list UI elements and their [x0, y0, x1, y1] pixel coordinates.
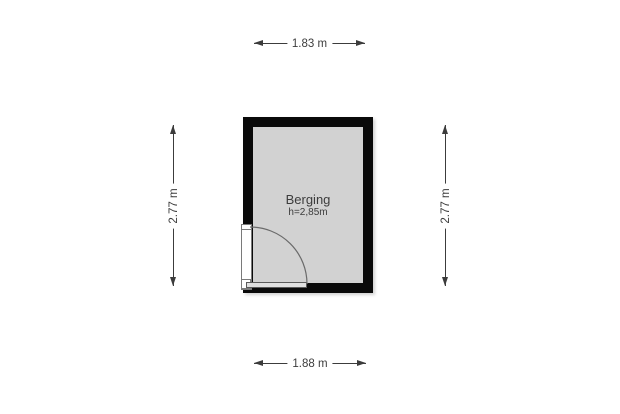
arrowhead-up-icon: [170, 125, 176, 134]
room-floor: Berging h=2,85m: [253, 127, 363, 283]
door-jamb-top: [241, 229, 252, 230]
building-walls: Berging h=2,85m: [243, 117, 373, 293]
arrowhead-down-icon: [170, 277, 176, 286]
dimension-top: 1.83 m: [254, 37, 365, 50]
dimension-bottom-label: 1.88 m: [287, 358, 332, 370]
dimension-left: 2.77 m: [167, 125, 180, 286]
floorplan-canvas: 1.83 m 1.88 m 2.77 m 2.77 m Berging h=2,…: [0, 0, 620, 414]
room-name: Berging: [286, 192, 331, 207]
dimension-top-label: 1.83 m: [287, 38, 332, 50]
arrowhead-left-icon: [254, 360, 263, 366]
dimension-bottom: 1.88 m: [254, 357, 366, 370]
room-height-label: h=2,85m: [286, 207, 331, 219]
dimension-right: 2.77 m: [439, 125, 452, 286]
arrowhead-down-icon: [442, 277, 448, 286]
dimension-left-label: 2.77 m: [168, 183, 180, 228]
door-leaf: [246, 282, 307, 288]
arrowhead-right-icon: [356, 40, 365, 46]
arrowhead-right-icon: [357, 360, 366, 366]
arrowhead-up-icon: [442, 125, 448, 134]
room-label: Berging h=2,85m: [286, 192, 331, 219]
arrowhead-left-icon: [254, 40, 263, 46]
dimension-right-label: 2.77 m: [440, 183, 452, 228]
